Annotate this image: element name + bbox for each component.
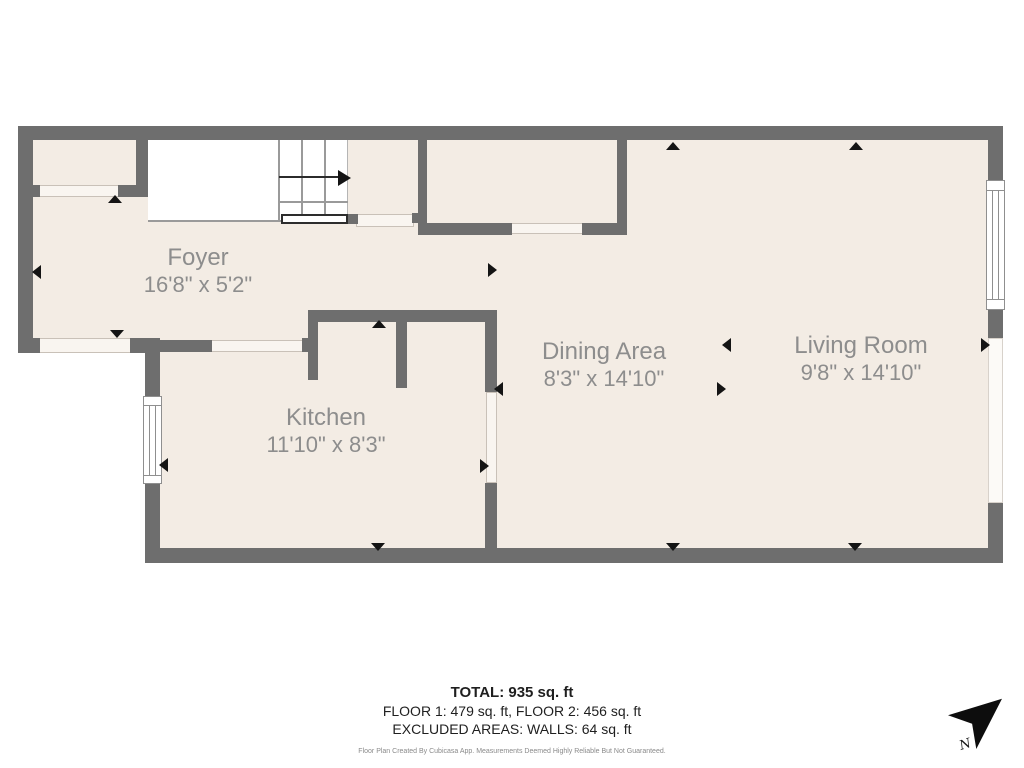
stair-tread-line	[301, 140, 303, 221]
floor-plan-page: Foyer 16'8" x 5'2" Kitchen 11'10" x 8'3"…	[0, 0, 1024, 768]
door-opening	[39, 185, 119, 197]
room-name: Living Room	[794, 332, 927, 360]
wall	[396, 322, 407, 388]
window-pane-line	[149, 406, 150, 475]
window-frame-line	[144, 475, 161, 476]
wall	[145, 548, 1003, 563]
window-frame-line	[144, 405, 161, 406]
stair-tread-line	[278, 201, 348, 203]
wall	[427, 223, 512, 235]
door-marker-icon	[488, 263, 497, 277]
window-pane-line	[155, 406, 156, 475]
wall	[33, 185, 40, 197]
room-label-living-room: Living Room 9'8" x 14'10"	[794, 332, 927, 386]
door-opening	[356, 214, 414, 227]
room-name: Kitchen	[266, 404, 385, 432]
door-marker-icon	[666, 142, 680, 150]
room-dimensions: 11'10" x 8'3"	[266, 432, 385, 458]
wall	[348, 214, 358, 224]
stair-direction-arrow	[279, 176, 341, 178]
door-marker-icon	[372, 320, 386, 328]
room-label-dining-area: Dining Area 8'3" x 14'10"	[542, 338, 666, 392]
wall	[132, 340, 212, 352]
wall	[308, 322, 318, 380]
window-pane-line	[998, 191, 999, 299]
stair-arrow-head-icon	[338, 170, 351, 186]
room-label-kitchen: Kitchen 11'10" x 8'3"	[266, 404, 385, 458]
window-frame-line	[987, 299, 1004, 300]
wall	[988, 503, 1003, 563]
entry-door-opening	[39, 338, 131, 353]
door-marker-icon	[981, 338, 990, 352]
floor-areas-text: FLOOR 1: 479 sq. ft, FLOOR 2: 456 sq. ft	[0, 702, 1024, 720]
door-marker-icon	[717, 382, 726, 396]
wall	[18, 338, 40, 353]
window	[986, 180, 1005, 310]
north-arrow-icon: N	[945, 688, 1017, 756]
door-marker-icon	[32, 265, 41, 279]
door-marker-icon	[159, 458, 168, 472]
exterior-area	[0, 353, 145, 568]
room-name: Foyer	[144, 244, 252, 272]
wall	[18, 126, 1003, 140]
wall	[308, 310, 497, 322]
stair-tread-line	[278, 140, 280, 221]
door-marker-icon	[371, 543, 385, 551]
room-dimensions: 8'3" x 14'10"	[542, 366, 666, 392]
door-opening	[210, 340, 304, 352]
wall	[412, 213, 427, 223]
wall	[145, 353, 160, 397]
wall	[118, 185, 148, 197]
area-summary: TOTAL: 935 sq. ft FLOOR 1: 479 sq. ft, F…	[0, 683, 1024, 756]
door-marker-icon	[110, 330, 124, 338]
door-marker-icon	[494, 382, 503, 396]
wall	[988, 309, 1003, 338]
total-area-text: TOTAL: 935 sq. ft	[0, 683, 1024, 702]
wall	[485, 483, 497, 548]
excluded-areas-text: EXCLUDED AREAS: WALLS: 64 sq. ft	[0, 720, 1024, 738]
patio-opening	[988, 338, 1003, 503]
room-dimensions: 9'8" x 14'10"	[794, 360, 927, 386]
wall	[18, 140, 33, 353]
room-label-foyer: Foyer 16'8" x 5'2"	[144, 244, 252, 298]
window-pane-line	[992, 191, 993, 299]
room-dimensions: 16'8" x 5'2"	[144, 272, 252, 298]
door-marker-icon	[666, 543, 680, 551]
stair-landing	[281, 214, 348, 224]
wall	[617, 140, 627, 235]
staircase	[148, 140, 348, 222]
door-marker-icon	[849, 142, 863, 150]
door-opening	[510, 223, 584, 234]
stair-tread-line	[324, 140, 326, 221]
compass-north-label: N	[957, 736, 974, 754]
disclaimer-text: Floor Plan Created By Cubicasa App. Meas…	[0, 747, 1024, 756]
door-marker-icon	[722, 338, 731, 352]
room-name: Dining Area	[542, 338, 666, 366]
door-marker-icon	[108, 195, 122, 203]
door-marker-icon	[480, 459, 489, 473]
window-frame-line	[987, 190, 1004, 191]
wall	[988, 126, 1003, 181]
door-marker-icon	[848, 543, 862, 551]
